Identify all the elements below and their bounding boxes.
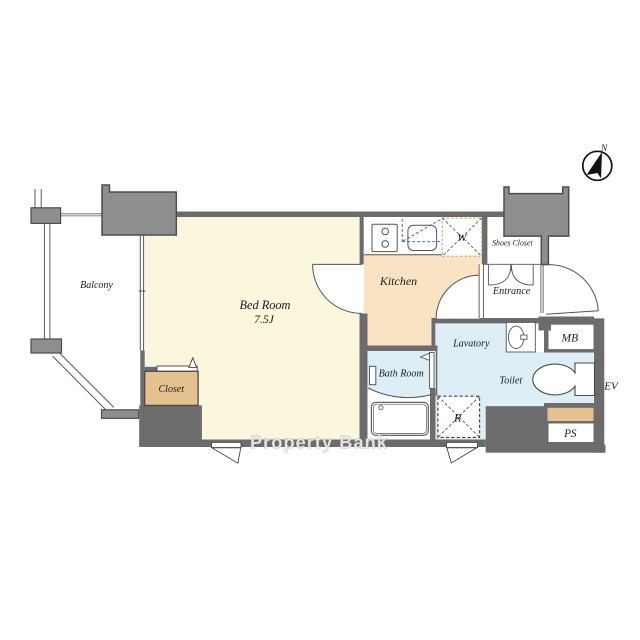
svg-text:Lavatory: Lavatory: [452, 339, 490, 350]
svg-text:Bath Room: Bath Room: [379, 369, 424, 380]
svg-text:7.5J: 7.5J: [254, 314, 274, 326]
svg-text:Balcony: Balcony: [80, 280, 113, 291]
svg-text:Entrance: Entrance: [492, 286, 531, 297]
svg-text:Bed Room: Bed Room: [240, 298, 291, 312]
svg-text:PS: PS: [563, 428, 577, 440]
svg-text:W: W: [457, 232, 467, 244]
svg-text:R: R: [453, 411, 462, 425]
svg-text:Shoes Closet: Shoes Closet: [492, 238, 533, 247]
svg-text:N: N: [600, 144, 608, 154]
svg-text:Property Bank: Property Bank: [250, 433, 388, 453]
svg-text:Toilet: Toilet: [499, 376, 523, 387]
svg-text:EV: EV: [603, 381, 619, 393]
svg-text:Closet: Closet: [159, 384, 185, 395]
svg-text:MB: MB: [560, 333, 578, 345]
svg-text:Kitchen: Kitchen: [379, 274, 417, 288]
